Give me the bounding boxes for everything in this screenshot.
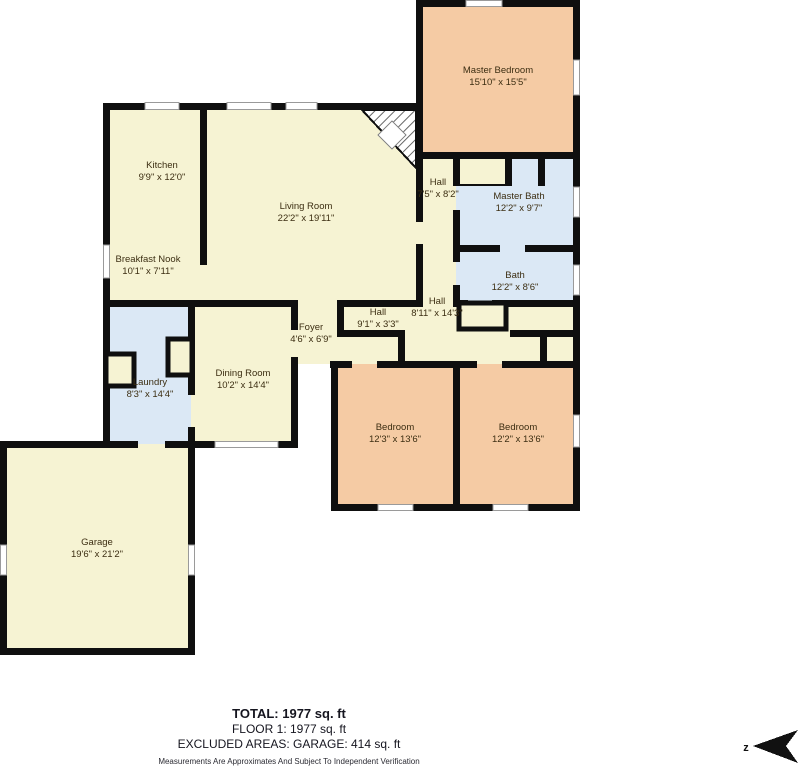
room-label-master-bedroom: Master Bedroom 15'10" x 15'5": [463, 65, 533, 89]
disclaimer-text: Measurements Are Approximates And Subjec…: [0, 757, 578, 766]
room-label-hall-upper: Hall 7'5" x 8'2": [417, 177, 459, 201]
room-name: Bedroom: [369, 422, 421, 434]
room-name: Bath: [492, 270, 539, 282]
room-label-breakfast-nook: Breakfast Nook 10'1" x 7'11": [116, 254, 181, 278]
room-dims: 7'5" x 8'2": [417, 189, 459, 201]
room-label-master-bath: Master Bath 12'2" x 9'7": [493, 191, 544, 215]
north-arrow-icon: [753, 730, 798, 763]
room-dims: 12'2" x 9'7": [493, 203, 544, 215]
room-label-dining-room: Dining Room 10'2" x 14'4": [216, 368, 271, 392]
room-dims: 19'6" x 21'2": [71, 549, 123, 561]
room-dims: 15'10" x 15'5": [463, 77, 533, 89]
room-name: Living Room: [278, 201, 335, 213]
room-name: Breakfast Nook: [116, 254, 181, 266]
room-label-living-room: Living Room 22'2" x 19'11": [278, 201, 335, 225]
north-label: z: [743, 742, 749, 754]
floorplan-canvas: Master Bedroom 15'10" x 15'5" Kitchen 9'…: [0, 0, 801, 768]
room-name: Master Bedroom: [463, 65, 533, 77]
room-name: Foyer: [290, 322, 332, 334]
room-dims: 12'2" x 13'6": [492, 434, 544, 446]
room-label-hall-mid: Hall 9'1" x 3'3": [357, 307, 399, 331]
room-label-foyer: Foyer 4'6" x 6'9": [290, 322, 332, 346]
room-dims: 12'2" x 8'6": [492, 282, 539, 294]
room-dims: 9'1" x 3'3": [357, 319, 399, 331]
room-dims: 8'3" x 14'4": [127, 389, 174, 401]
room-label-garage: Garage 19'6" x 21'2": [71, 537, 123, 561]
room-dims: 12'3" x 13'6": [369, 434, 421, 446]
room-label-hall-lower: Hall 8'11" x 14'3": [411, 296, 462, 320]
room-dims: 10'2" x 14'4": [216, 380, 271, 392]
room-name: Hall: [411, 296, 462, 308]
excluded-area-text: EXCLUDED AREAS: GARAGE: 414 sq. ft: [0, 737, 578, 751]
room-dims: 8'11" x 14'3": [411, 308, 462, 320]
area-summary: TOTAL: 1977 sq. ft FLOOR 1: 1977 sq. ft …: [0, 706, 578, 751]
floor1-area-text: FLOOR 1: 1977 sq. ft: [0, 722, 578, 736]
room-name: Hall: [357, 307, 399, 319]
room-label-bedroom-1: Bedroom 12'3" x 13'6": [369, 422, 421, 446]
room-name: Garage: [71, 537, 123, 549]
room-name: Bedroom: [492, 422, 544, 434]
room-label-bath: Bath 12'2" x 8'6": [492, 270, 539, 294]
room-dims: 9'9" x 12'0": [139, 172, 186, 184]
floorplan-drawing: [0, 0, 801, 768]
room-dims: 4'6" x 6'9": [290, 334, 332, 346]
room-label-kitchen: Kitchen 9'9" x 12'0": [139, 160, 186, 184]
room-dims: 22'2" x 19'11": [278, 213, 335, 225]
room-name: Kitchen: [139, 160, 186, 172]
room-name: Laundry: [127, 377, 174, 389]
room-dims: 10'1" x 7'11": [116, 266, 181, 278]
room-name: Dining Room: [216, 368, 271, 380]
room-name: Hall: [417, 177, 459, 189]
room-label-laundry: Laundry 8'3" x 14'4": [127, 377, 174, 401]
room-label-bedroom-2: Bedroom 12'2" x 13'6": [492, 422, 544, 446]
room-name: Master Bath: [493, 191, 544, 203]
total-area-text: TOTAL: 1977 sq. ft: [0, 706, 578, 721]
